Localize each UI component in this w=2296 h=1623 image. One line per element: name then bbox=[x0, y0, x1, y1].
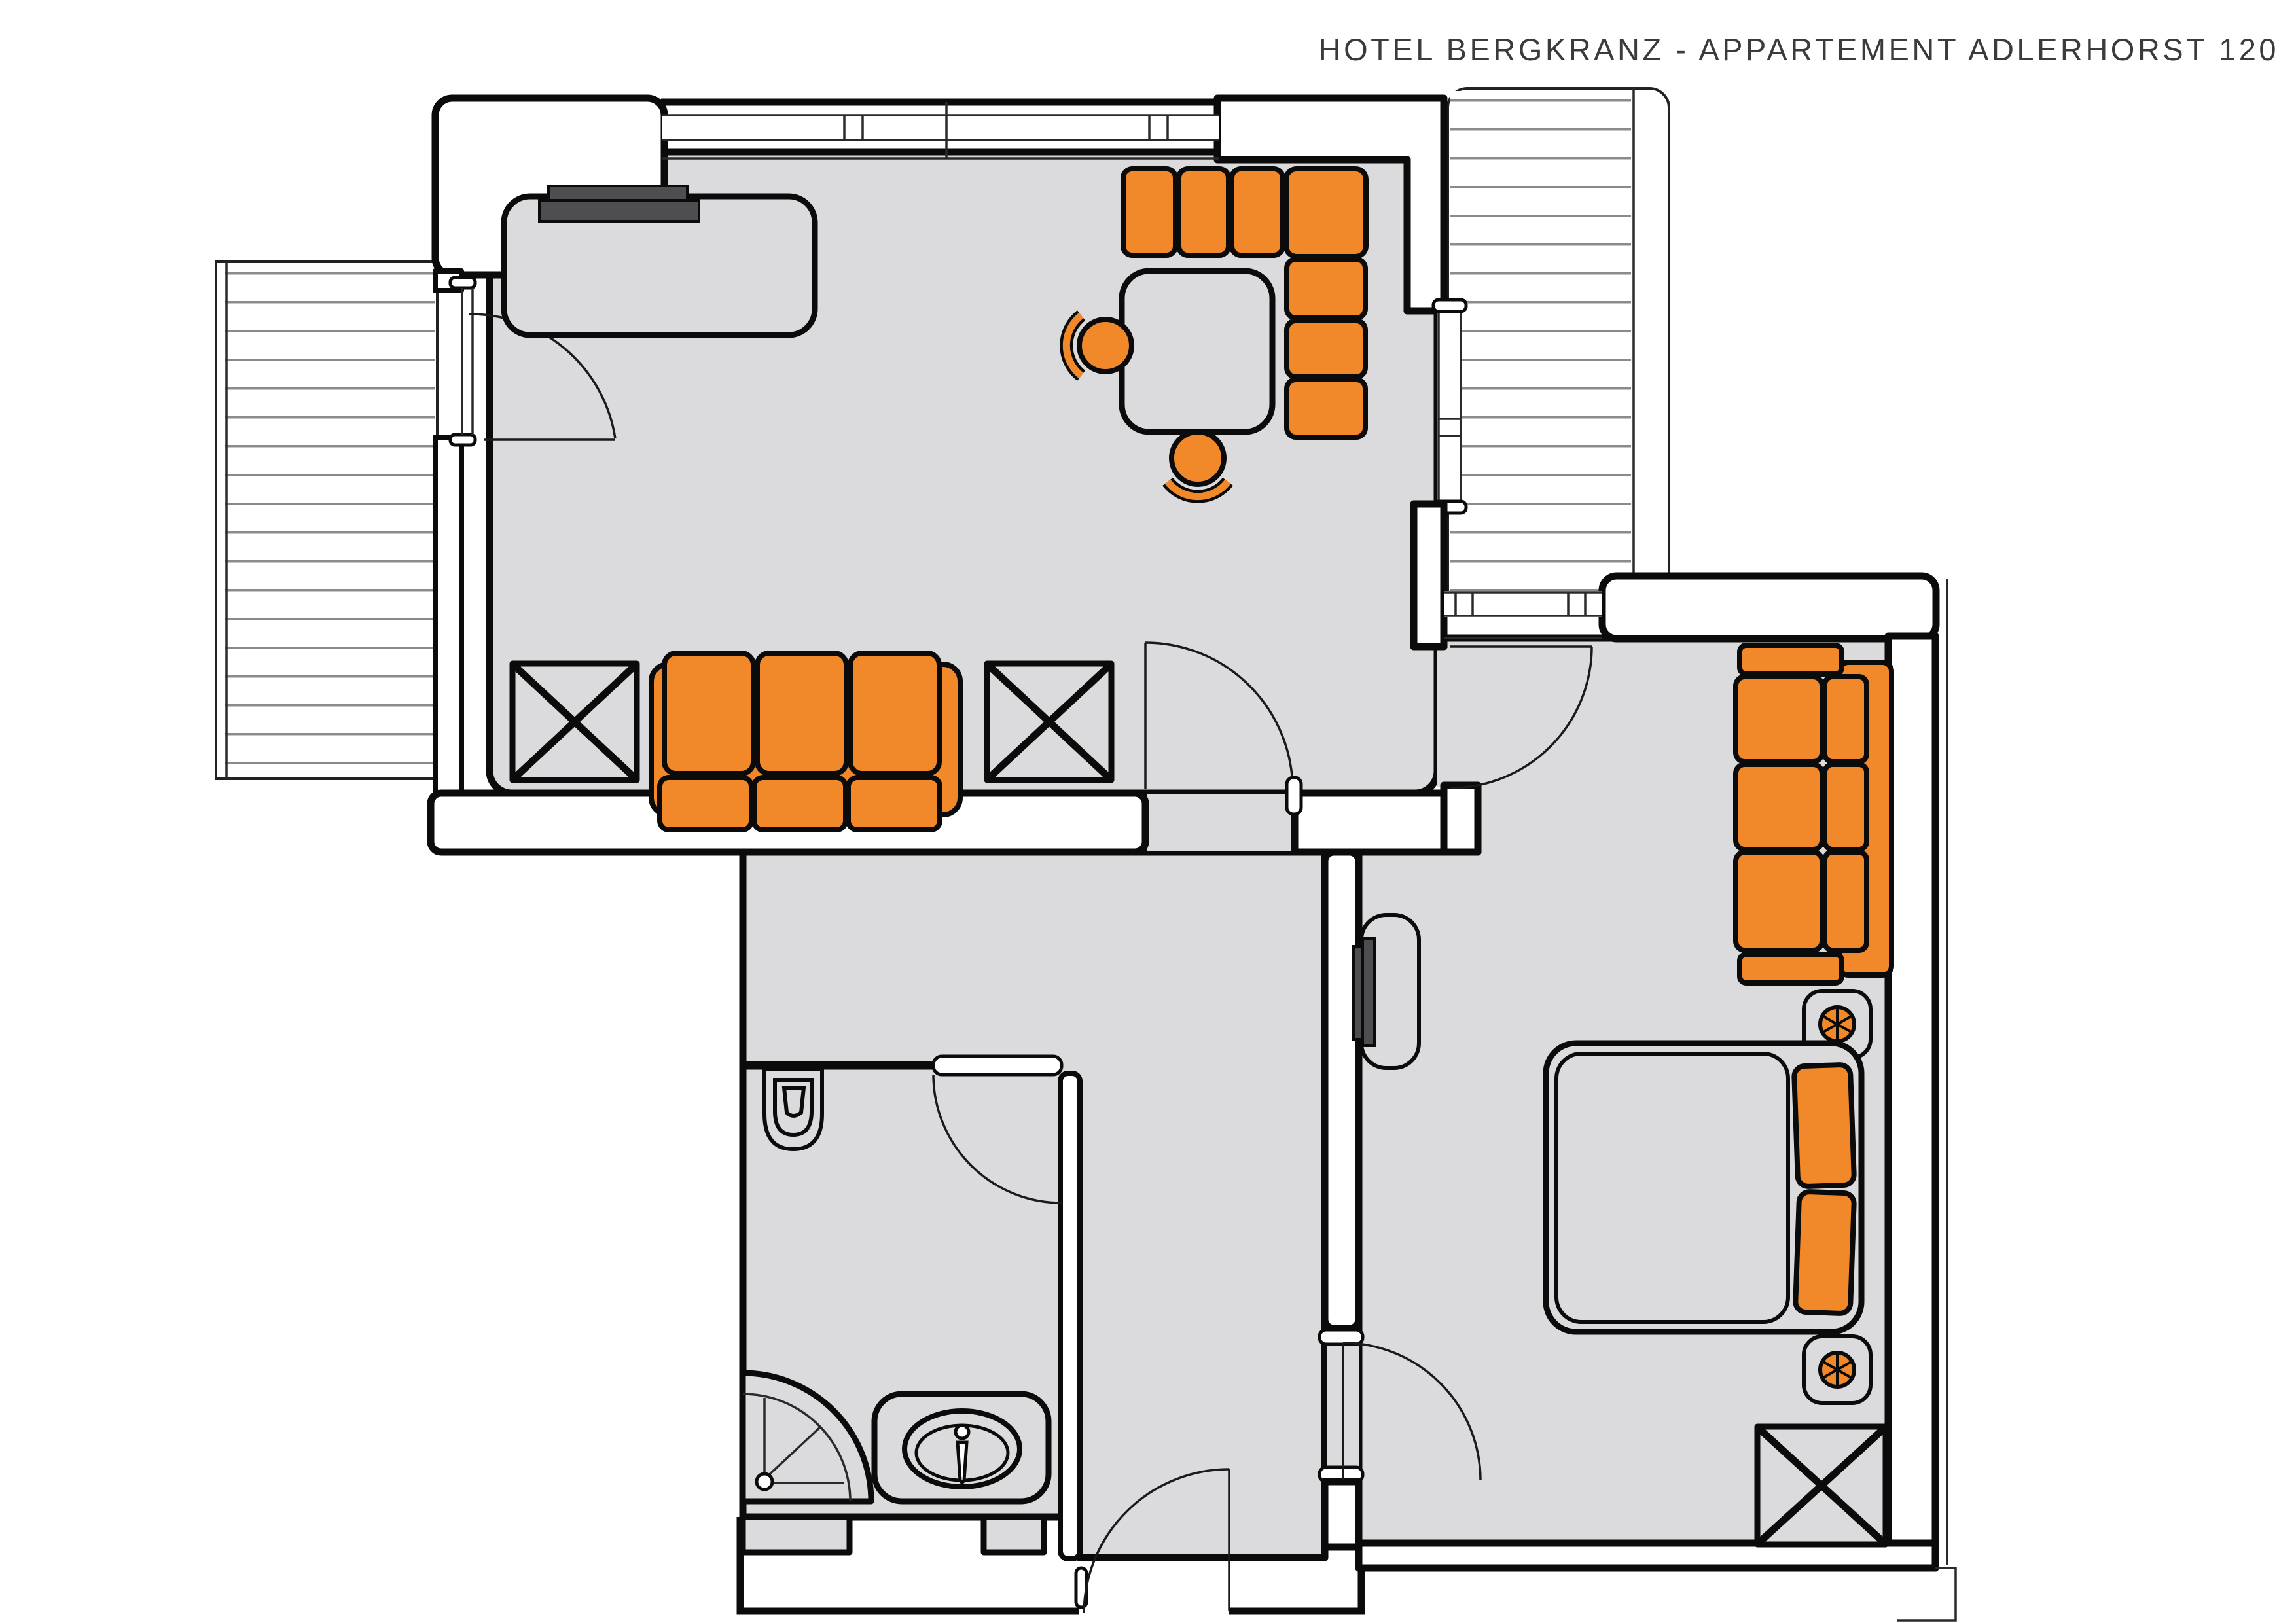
bedroom-upper-opening-floor bbox=[1437, 648, 1478, 787]
door-frame-tab bbox=[450, 435, 475, 445]
bench-cushion bbox=[1179, 169, 1229, 255]
door-leaf-bar bbox=[933, 1056, 1062, 1075]
tap-icon bbox=[958, 1442, 967, 1482]
sofa-seat-cushion bbox=[1736, 764, 1822, 849]
sofa-seat-cushion bbox=[660, 777, 751, 830]
balcony-right-decking bbox=[1448, 88, 1669, 609]
bedroom-wardrobe-x-box bbox=[1757, 1427, 1886, 1544]
facade-step-bottom-right bbox=[1897, 1568, 1956, 1620]
bench-corner-cushion bbox=[1286, 169, 1366, 257]
tv-icon bbox=[1363, 938, 1374, 1046]
bed-pillow bbox=[1794, 1065, 1854, 1187]
table-top bbox=[1122, 271, 1272, 432]
bedroom-top-window bbox=[1444, 591, 1602, 638]
balcony-left-deck-lines bbox=[225, 264, 435, 776]
sofa-back-cushion bbox=[757, 653, 846, 774]
shower-drain bbox=[757, 1474, 772, 1489]
chair-seat bbox=[1172, 432, 1224, 484]
wall-neck-stub bbox=[1444, 785, 1478, 852]
bedroom-sofa-three-seat bbox=[1736, 645, 1892, 983]
bench-cushion bbox=[1287, 259, 1365, 318]
bench-cushion bbox=[1287, 321, 1365, 377]
dining-chair-bottom bbox=[1168, 432, 1228, 497]
sofa-seat-cushion bbox=[1736, 852, 1822, 950]
bench-cushion bbox=[1123, 169, 1175, 255]
window-frame-tab bbox=[1433, 300, 1466, 312]
sofa-back-cushion bbox=[1825, 677, 1867, 762]
door-frame-tab bbox=[1287, 777, 1301, 814]
tv-icon bbox=[539, 200, 699, 221]
wall-bathroom-right bbox=[1060, 1073, 1080, 1559]
washbasin-counter bbox=[874, 1394, 1049, 1501]
door-frame-tab bbox=[450, 277, 475, 288]
chair-seat bbox=[1079, 319, 1132, 372]
bathroom-pedestal bbox=[743, 1517, 850, 1552]
bed-pillow bbox=[1795, 1192, 1854, 1314]
window-band-fill bbox=[1437, 311, 1462, 504]
sofa-seat-cushion bbox=[1736, 677, 1822, 762]
tap-icon bbox=[956, 1425, 969, 1438]
sofa-back-cushion bbox=[850, 653, 939, 774]
window-band-fill bbox=[662, 115, 1219, 140]
wall-t-stub bbox=[1325, 1482, 1359, 1547]
sofa-back-cushion bbox=[1825, 764, 1867, 849]
door-frame-tab bbox=[1319, 1330, 1363, 1344]
wall-hall-bedroom-divider bbox=[1325, 852, 1359, 1329]
bathroom-pedestal bbox=[984, 1517, 1044, 1552]
wall-bedroom-top bbox=[1602, 576, 1936, 639]
floorplan-drawing bbox=[0, 0, 2296, 1623]
sofa-armrest bbox=[1740, 954, 1842, 983]
sofa-back-cushion bbox=[664, 653, 753, 774]
sofa-back-cushion bbox=[1825, 852, 1867, 950]
bench-cushion bbox=[1287, 380, 1365, 437]
living-sofa-three-seat bbox=[651, 653, 960, 830]
sofa-armrest bbox=[1740, 645, 1842, 674]
toilet-flush bbox=[784, 1088, 804, 1116]
wardrobe-x-box-right bbox=[987, 664, 1111, 780]
wall-left-lower-strip bbox=[435, 437, 461, 797]
bedroom-sideboard-with-tv bbox=[1354, 915, 1419, 1068]
sideboard-with-tv bbox=[504, 186, 815, 335]
wall-bedroom-right bbox=[1888, 636, 1935, 1568]
outer-wall-bottom-right bbox=[1229, 1568, 1361, 1611]
double-bed-two-pillows bbox=[1546, 1043, 1861, 1332]
wall-living-right-lower bbox=[1414, 504, 1444, 647]
square-dining-table bbox=[1122, 271, 1272, 432]
window-band-fill bbox=[1444, 591, 1602, 617]
balcony-right-deck-lines bbox=[1450, 91, 1631, 606]
bench-cushion bbox=[1232, 169, 1283, 255]
tv-icon bbox=[1354, 946, 1363, 1039]
wardrobe-x-box-left bbox=[512, 664, 637, 780]
nightstand-with-lamp-bottom bbox=[1804, 1336, 1871, 1403]
bed-duvet bbox=[1556, 1054, 1788, 1322]
floorplan-page: HOTEL BERGKRANZ - APPARTEMENT ADLERHORST… bbox=[0, 0, 2296, 1623]
sofa-seat-cushion bbox=[754, 777, 846, 830]
page-title: HOTEL BERGKRANZ - APPARTEMENT ADLERHORST… bbox=[1319, 31, 2279, 67]
balcony-left-decking bbox=[216, 262, 437, 779]
sofa-seat-cushion bbox=[848, 777, 940, 830]
toilet bbox=[764, 1069, 822, 1149]
living-right-window bbox=[1433, 300, 1466, 513]
living-hall-opening-floor bbox=[1147, 794, 1293, 851]
